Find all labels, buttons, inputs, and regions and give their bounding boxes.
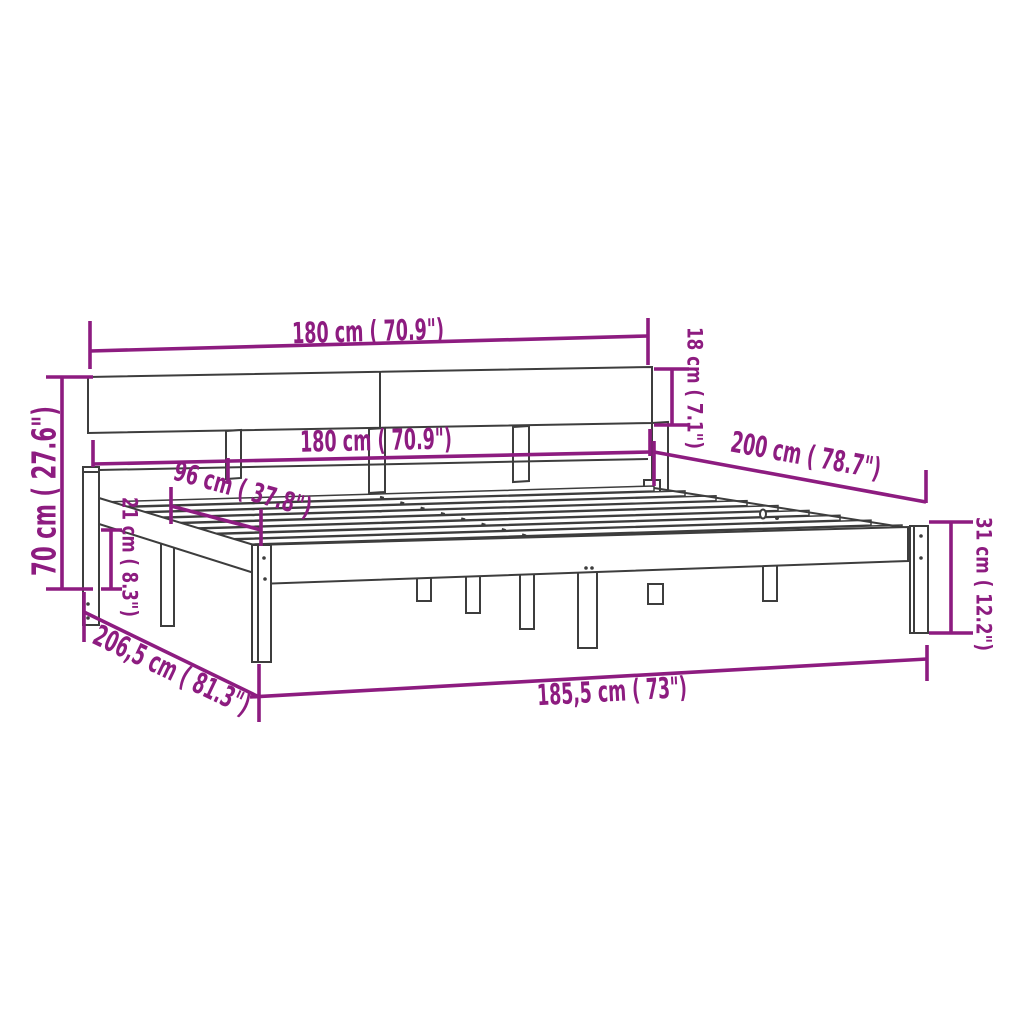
screw-icon [86, 616, 90, 620]
dim-headboard-height-label: 70 cm ( 27.6") [25, 406, 64, 576]
leg-stub [520, 574, 534, 629]
leg-face [910, 526, 928, 633]
screw-icon [919, 556, 923, 560]
diagram-canvas: 180 cm ( 70.9") 180 cm ( 70.9") 18 cm ( … [0, 0, 1024, 1024]
dim-total-width: 185,5 cm ( 73") [250, 645, 927, 722]
dim-total-width-label: 185,5 cm ( 73") [536, 670, 688, 712]
dim-total-length-label: 206,5 cm ( 81.3") [88, 618, 256, 722]
screw-icon [590, 566, 594, 570]
leg-face [252, 545, 271, 662]
dim-headboard-width: 180 cm ( 70.9") [90, 312, 648, 369]
leg-stub [466, 572, 480, 613]
leg-foot-left [252, 545, 271, 662]
dim-headboard-board-height-label: 18 cm ( 7.1") [683, 327, 707, 449]
screw-icon [775, 516, 779, 520]
leg-foot-right [910, 526, 928, 633]
leg-stub [763, 565, 777, 601]
screw-icon [584, 566, 588, 570]
screw-icon [919, 534, 923, 538]
dim-side-rail-height-label: 21 cm ( 8.3") [118, 497, 142, 617]
rail-hook [760, 510, 766, 519]
screw-icon [86, 602, 90, 606]
dim-inner-width-label: 180 cm ( 70.9") [300, 422, 453, 459]
bed-frame-dimension-diagram: 180 cm ( 70.9") 180 cm ( 70.9") 18 cm ( … [0, 0, 1024, 1024]
dim-leg-height: 31 cm ( 12.2") [929, 517, 996, 651]
leg-stub [648, 584, 663, 604]
dim-headboard-width-label: 180 cm ( 70.9") [292, 312, 445, 350]
screw-icon [263, 577, 267, 581]
dim-frame-length-label: 200 cm ( 78.7") [728, 425, 884, 486]
dim-leg-height-label: 31 cm ( 12.2") [972, 517, 996, 651]
screw-icon [262, 556, 266, 560]
